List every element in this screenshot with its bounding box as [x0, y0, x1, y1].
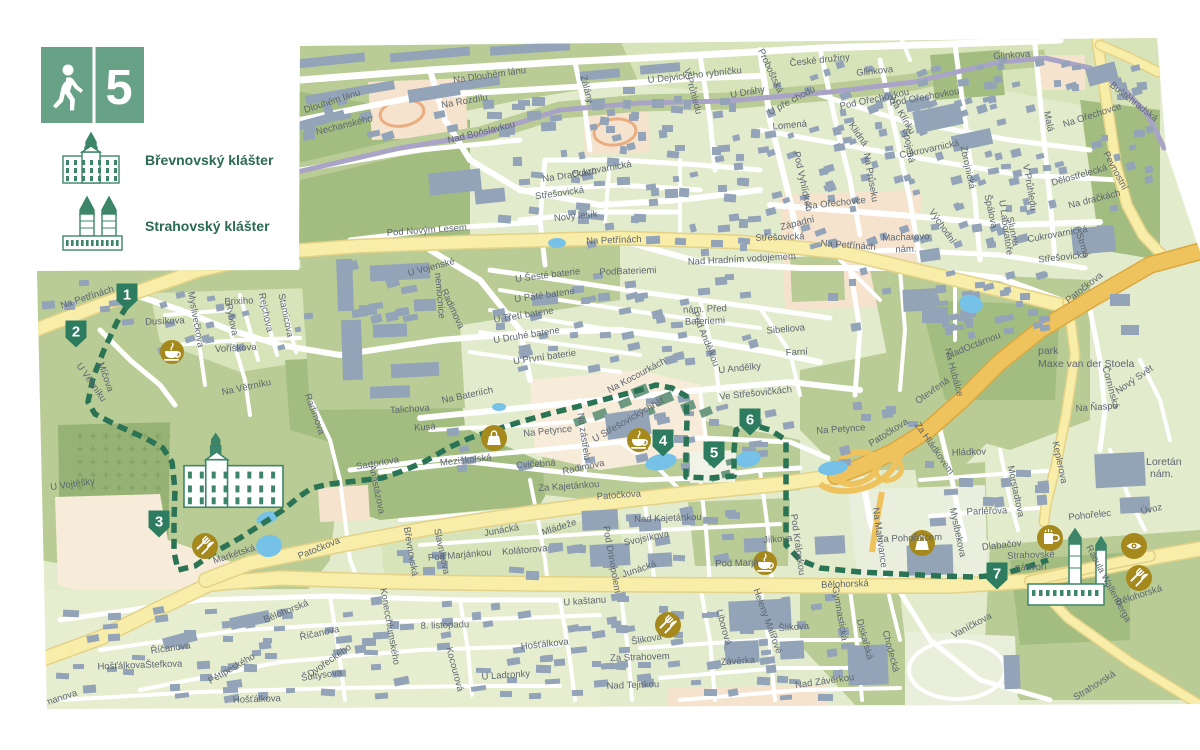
- svg-text:Hošťálkova: Hošťálkova: [233, 693, 282, 706]
- svg-text:Jilkova: Jilkova: [763, 533, 793, 546]
- svg-text:Strahovský klášter: Strahovský klášter: [145, 218, 270, 234]
- svg-text:1: 1: [123, 287, 131, 304]
- svg-text:Macharovo: Macharovo: [882, 231, 929, 244]
- svg-text:nádvoří: nádvoří: [1015, 561, 1047, 573]
- svg-text:Voříškova: Voříškova: [215, 342, 258, 355]
- svg-text:Hládkov: Hládkov: [952, 446, 987, 458]
- svg-text:park: park: [1038, 345, 1059, 357]
- svg-text:5: 5: [710, 445, 718, 462]
- svg-text:Bělohorská: Bělohorská: [821, 578, 870, 591]
- svg-text:Na Petřínách: Na Petřínách: [586, 234, 642, 247]
- svg-text:2: 2: [72, 324, 80, 341]
- svg-text:Za Strahovem: Za Strahovem: [610, 651, 670, 664]
- svg-text:Břevnovský klášter: Břevnovský klášter: [145, 152, 274, 168]
- svg-text:Střešovická: Střešovická: [755, 231, 805, 244]
- svg-text:Za Pohořelcem: Za Pohořelcem: [878, 532, 943, 545]
- svg-text:Kusá: Kusá: [414, 421, 437, 434]
- svg-text:5: 5: [105, 61, 132, 115]
- svg-text:Parléřova: Parléřova: [966, 505, 1008, 517]
- svg-text:4: 4: [659, 433, 668, 450]
- svg-text:Farní: Farní: [786, 346, 809, 358]
- svg-text:Loretán: Loretán: [1146, 456, 1182, 468]
- svg-text:8. listopadu: 8. listopadu: [420, 619, 469, 632]
- svg-text:Strahovské: Strahovské: [1007, 549, 1055, 562]
- svg-text:Nad Tejnkou: Nad Tejnkou: [606, 679, 659, 692]
- svg-text:6: 6: [746, 412, 754, 429]
- svg-text:Pod Marjá: Pod Marjá: [715, 557, 759, 570]
- svg-text:nám.: nám.: [1150, 468, 1173, 480]
- svg-text:7: 7: [993, 566, 1001, 583]
- svg-text:Šlikova: Šlikova: [778, 621, 810, 634]
- svg-text:3: 3: [155, 514, 163, 531]
- svg-text:PodBateriemi: PodBateriemi: [599, 265, 656, 278]
- svg-text:Dusíkova: Dusíkova: [145, 315, 186, 327]
- svg-text:Maxe van der Stoela: Maxe van der Stoela: [1038, 358, 1134, 370]
- svg-text:nám.: nám.: [895, 244, 916, 256]
